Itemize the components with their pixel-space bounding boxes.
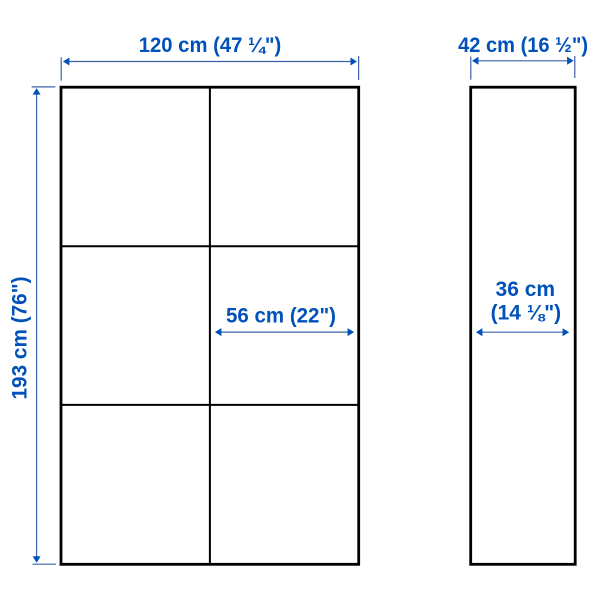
svg-text:56 cm (22"): 56 cm (22")	[226, 305, 336, 328]
svg-text:42 cm (16 ½"): 42 cm (16 ½")	[458, 34, 588, 57]
svg-text:193 cm (76"): 193 cm (76")	[8, 277, 31, 400]
svg-text:36 cm: 36 cm	[496, 278, 556, 301]
svg-text:(14 ⅛"): (14 ⅛")	[491, 302, 562, 325]
svg-text:120 cm (47 ¼"): 120 cm (47 ¼")	[139, 34, 282, 57]
